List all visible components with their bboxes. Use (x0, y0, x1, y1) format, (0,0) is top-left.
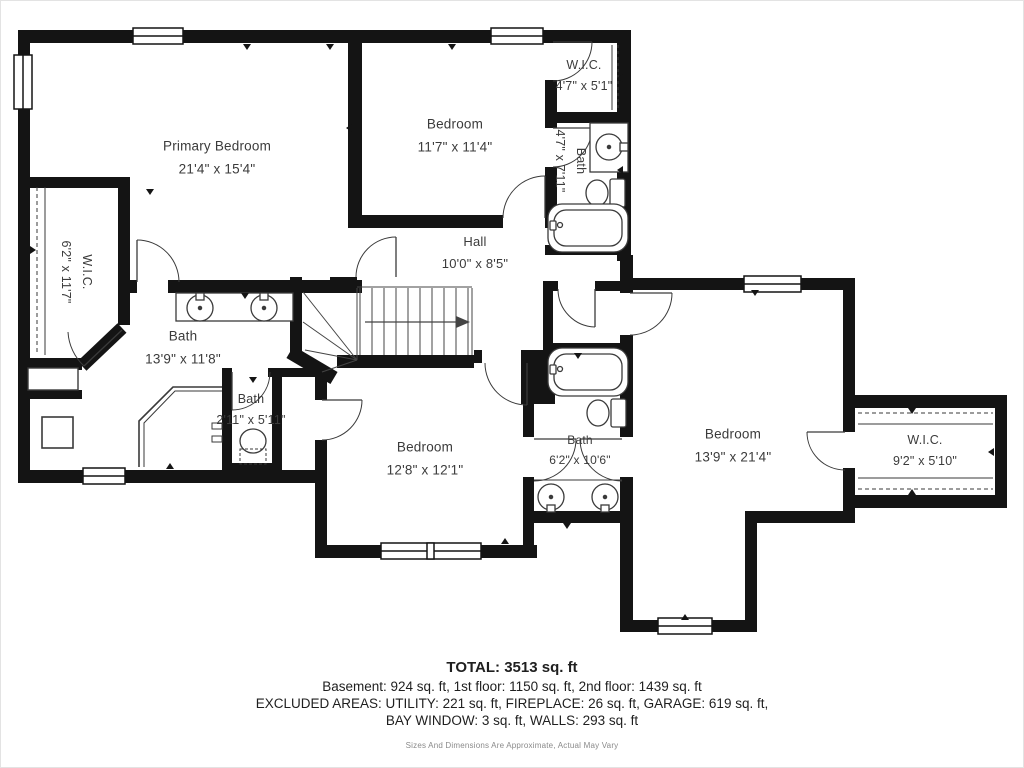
toilet-icon (587, 399, 626, 427)
door (580, 439, 622, 481)
excluded-areas-2: BAY WINDOW: 3 sq. ft, WALLS: 293 sq. ft (0, 712, 1024, 729)
window (381, 543, 481, 559)
total-area: TOTAL: 3513 sq. ft (0, 658, 1024, 678)
window (83, 468, 125, 484)
toilet-icon (586, 179, 625, 207)
stairs-direction-arrow (365, 316, 470, 328)
area-summary: TOTAL: 3513 sq. ft Basement: 924 sq. ft,… (0, 658, 1024, 750)
shower-icon (28, 368, 222, 467)
door (553, 42, 592, 81)
door (485, 363, 527, 405)
floor-areas: Basement: 924 sq. ft, 1st floor: 1150 sq… (0, 678, 1024, 695)
window (658, 618, 712, 634)
vanity-sink-icon (590, 123, 628, 172)
bathtub-icon (548, 348, 628, 396)
door (534, 439, 576, 481)
door (137, 240, 179, 282)
floor-plan-page: Primary Bedroom21'4" x 15'4"Bedroom11'7"… (0, 0, 1024, 768)
doors (68, 42, 845, 481)
door (558, 289, 595, 327)
disclaimer: Sizes And Dimensions Are Approximate, Ac… (0, 741, 1024, 750)
door (503, 176, 545, 218)
floor-plan (0, 0, 1024, 768)
double-vanity-icon (176, 293, 293, 321)
window (744, 276, 801, 292)
walls (18, 30, 1007, 632)
window (491, 28, 543, 44)
excluded-areas: EXCLUDED AREAS: UTILITY: 221 sq. ft, FIR… (0, 695, 1024, 712)
toilet-icon (212, 423, 266, 464)
door (630, 293, 672, 335)
door (807, 432, 845, 470)
window (14, 55, 32, 109)
double-vanity-icon (534, 480, 622, 512)
bathtub-icon (548, 204, 628, 252)
window (133, 28, 183, 44)
door (356, 237, 396, 277)
door (322, 400, 362, 440)
door (553, 128, 592, 167)
